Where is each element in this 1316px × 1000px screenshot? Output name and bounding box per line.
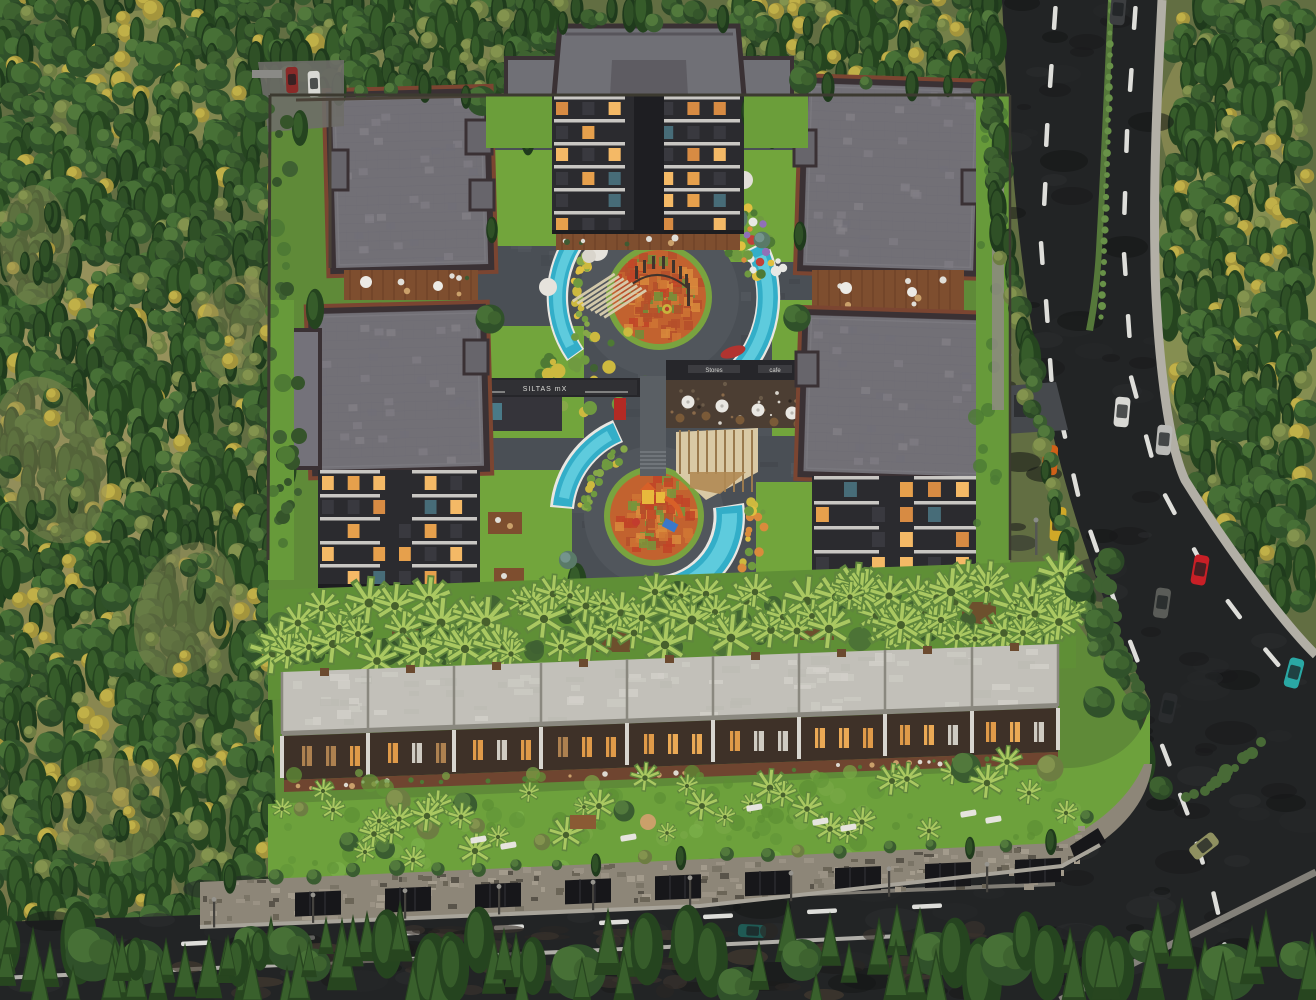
svg-text:cafe: cafe (769, 368, 781, 374)
svg-text:SILTAS mX: SILTAS mX (523, 386, 568, 393)
svg-text:Stores: Stores (705, 368, 722, 374)
